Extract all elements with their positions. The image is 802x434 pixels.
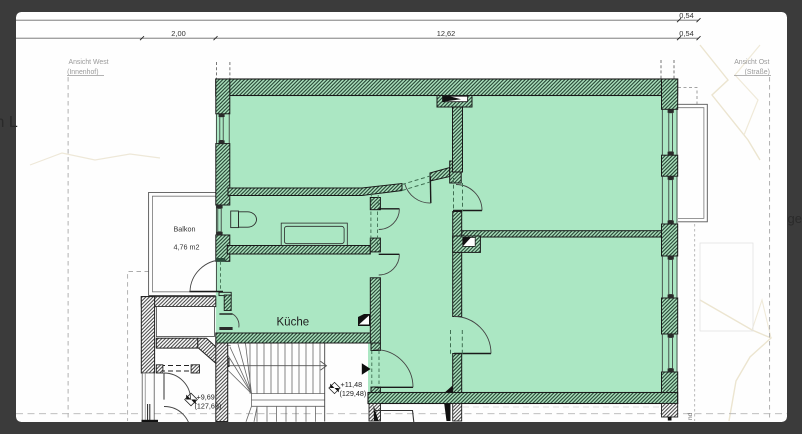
svg-text:2,00: 2,00 bbox=[171, 29, 185, 38]
svg-text:+9,69: +9,69 bbox=[197, 392, 215, 401]
svg-text:nd: nd bbox=[687, 412, 694, 420]
svg-text:ge: ge bbox=[788, 211, 802, 226]
svg-text:Ansicht Ost: Ansicht Ost bbox=[734, 59, 769, 66]
svg-text:0,54: 0,54 bbox=[679, 11, 693, 20]
svg-text:(129,48): (129,48) bbox=[340, 389, 367, 398]
svg-text:12,62: 12,62 bbox=[437, 29, 456, 38]
svg-text:Balkon: Balkon bbox=[174, 225, 196, 234]
svg-text:0,54: 0,54 bbox=[679, 29, 693, 38]
svg-text:(127,69): (127,69) bbox=[195, 402, 222, 411]
svg-text:(Innenhof): (Innenhof) bbox=[67, 69, 98, 76]
svg-text:Ansicht West: Ansicht West bbox=[69, 59, 109, 66]
svg-text:+11,48: +11,48 bbox=[341, 380, 363, 389]
svg-text:Küche: Küche bbox=[277, 317, 310, 329]
svg-text:(Straße): (Straße) bbox=[745, 69, 770, 76]
svg-text:4,76 m2: 4,76 m2 bbox=[174, 243, 200, 252]
svg-text:in L: in L bbox=[0, 114, 18, 131]
